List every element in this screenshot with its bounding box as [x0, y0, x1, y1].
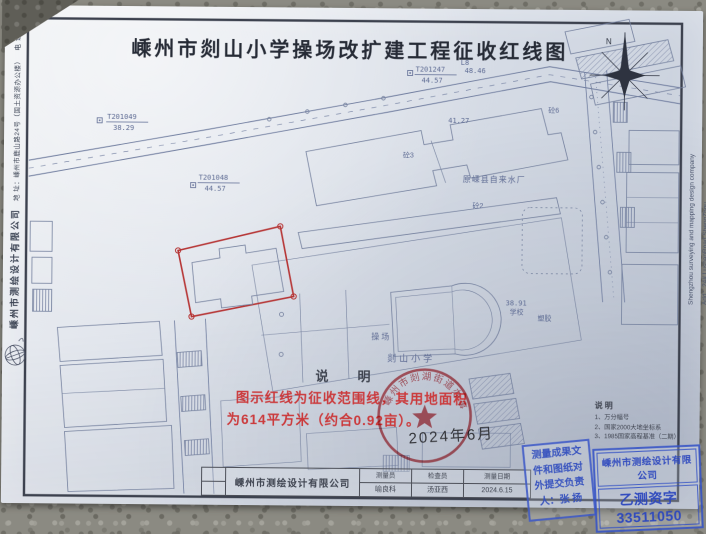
building-inside-redline — [192, 245, 285, 309]
svg-text:38.91: 38.91 — [506, 299, 527, 307]
drawing-content: T201049 38.29 T201048 44.57 T201247 44.5… — [0, 0, 706, 522]
company-name-vertical: 嵊州市测绘设计有限公司 — [7, 208, 21, 329]
svg-text:T201048: T201048 — [199, 174, 229, 182]
svg-text:48.46: 48.46 — [465, 67, 486, 75]
map-labels: 剡山小学 操场 原嵊县自来水厂 学校 塑胶 砼3 砼2 砼6 — [371, 104, 559, 365]
running-track — [390, 283, 501, 358]
legend-item-1: 1、万分幅号 — [595, 413, 683, 423]
label-tong2: 砼2 — [472, 201, 483, 210]
label-waterworks: 原嵊县自来水厂 — [463, 174, 526, 185]
company-name-english: Shengzhou surveying and mapping design c… — [688, 154, 696, 305]
label-tong6: 砼6 — [548, 106, 559, 115]
red-official-seal: 嵊州市剡湖街道办事处 — [370, 362, 479, 471]
right-margin-english-info: Shengzhou surveying and mapping design c… — [688, 154, 706, 305]
seal-star-icon — [412, 405, 437, 429]
legend-item-3: 3、1985国家高程基准（二期） — [594, 432, 682, 442]
svg-text:44.57: 44.57 — [422, 77, 443, 85]
site-plan-drawing: T201049 38.29 T201048 44.57 T201247 44.5… — [0, 0, 706, 522]
drawing-title: 嵊州市剡山小学操场改扩建工程征收红线图 — [62, 31, 638, 65]
blue-stamp-company-license: 嵊州市测绘设计有限公司 乙测资字33511050 — [592, 444, 704, 533]
red-line-boundary — [175, 223, 297, 320]
svg-text:T201049: T201049 — [107, 113, 137, 121]
photo-tilt-wrapper: T201049 38.29 T201048 44.57 T201247 44.5… — [0, 0, 706, 522]
title-block-inspector: 检查员 汤亚西 — [412, 470, 464, 497]
title-block-company: 嵊州市测绘设计有限公司 — [226, 468, 360, 496]
blue-stamp-responsible-person: 测量成果文 件和图纸对 外提交负责 人：张 扬 — [522, 439, 597, 522]
svg-text:41.27: 41.27 — [448, 117, 469, 125]
svg-text:38.29: 38.29 — [113, 124, 134, 132]
legend-heading: 说明 — [595, 400, 683, 412]
label-xuexiao: 学校 — [510, 307, 524, 316]
label-playground: 操场 — [371, 331, 391, 341]
title-block-spare-cell — [202, 468, 226, 495]
legend-block: 说明 1、万分幅号 2、国家2000大地坐标系 3、1985国家高程基准（二期） — [594, 400, 682, 443]
label-sujiao: 塑胶 — [537, 314, 551, 323]
title-block-surveyor: 测量员 喻良科 — [360, 469, 412, 496]
title-block-survey-date: 测量日期 2024.6.15 — [464, 470, 530, 498]
photo-of-redline-map: { "title": "嵊州市剡山小学操场改扩建工程征收红线图", "margi… — [0, 0, 706, 519]
stamp-license-number: 乙测资字33511050 — [598, 484, 700, 528]
label-tong3: 砼3 — [403, 150, 414, 159]
company-address-english: Add：24# LushanRoad ShengZhou — [699, 154, 706, 305]
stamp-company-name: 嵊州市测绘设计有限公司 — [596, 448, 697, 486]
company-address: 地 址：嵊州市鹿山路24号（国土资源办公楼） — [10, 57, 21, 201]
svg-text:44.57: 44.57 — [205, 185, 226, 193]
svg-text:T201247: T201247 — [416, 66, 446, 74]
title-block-table: 嵊州市测绘设计有限公司 测量员 喻良科 检查员 汤亚西 测量日期 2024.6.… — [201, 467, 531, 499]
